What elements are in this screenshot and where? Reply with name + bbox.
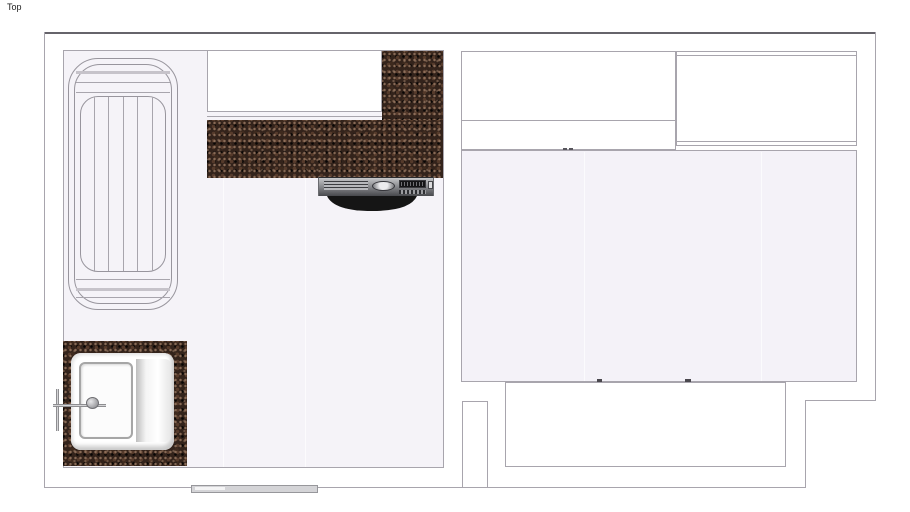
cabinet-right-inner-bottom-line: [677, 141, 856, 142]
wall-pillar: [462, 401, 488, 488]
granite-countertop-corner: [382, 51, 443, 120]
drying-rack-bar: [76, 92, 170, 93]
oven-button: [428, 181, 433, 189]
oven-door-handle: [322, 193, 422, 215]
drying-rack-slat: [94, 97, 95, 272]
drying-rack-bar: [76, 288, 170, 291]
cabinet-left-divider-line: [462, 120, 675, 121]
balcony-inset: [505, 382, 786, 467]
counter-front-edge-line: [207, 116, 382, 117]
room-floor-seam: [584, 152, 585, 381]
wall-outer-bottom-line: [44, 487, 806, 488]
cabinet-left: [461, 51, 676, 150]
door-sill-notch: [195, 487, 225, 490]
wall-step-vertical-line: [805, 400, 806, 488]
wall-outer-top-line: [44, 32, 876, 34]
view-label: Top: [7, 2, 22, 12]
drying-rack-slat: [152, 97, 153, 272]
drying-rack-slat: [108, 97, 109, 272]
faucet-riser: [56, 389, 59, 431]
model-viewport[interactable]: Top: [0, 0, 910, 512]
cabinet-right: [676, 51, 857, 146]
counter-cabinet: [207, 50, 382, 112]
oven-display-ticks: [401, 182, 424, 186]
granite-countertop: [207, 120, 443, 178]
oven-timer-display: [399, 180, 426, 188]
sink-drainboard: [136, 359, 171, 442]
drying-rack-bar: [76, 279, 170, 280]
oven-clock-display: [372, 181, 395, 191]
drying-rack-slat: [123, 97, 124, 272]
oven-vent-slits: [324, 181, 368, 190]
kitchen-floor-seam: [305, 178, 306, 467]
wall-step-horizontal-line: [805, 400, 876, 401]
room-floor: [461, 150, 857, 382]
faucet-handle: [86, 397, 99, 409]
drying-rack-slat: [137, 97, 138, 272]
cabinet-right-inner-top-line: [677, 55, 856, 56]
drying-rack-bar: [76, 71, 170, 74]
drying-rack-slat-area: [80, 96, 166, 272]
kitchen-floor-seam: [223, 178, 224, 467]
room-floor-seam: [761, 152, 762, 381]
wall-outer-left-line: [44, 32, 45, 488]
wall-outer-right-line: [875, 32, 876, 401]
door-sill: [191, 485, 318, 493]
drying-rack-bar: [76, 82, 170, 83]
drying-rack-bar: [76, 297, 170, 298]
